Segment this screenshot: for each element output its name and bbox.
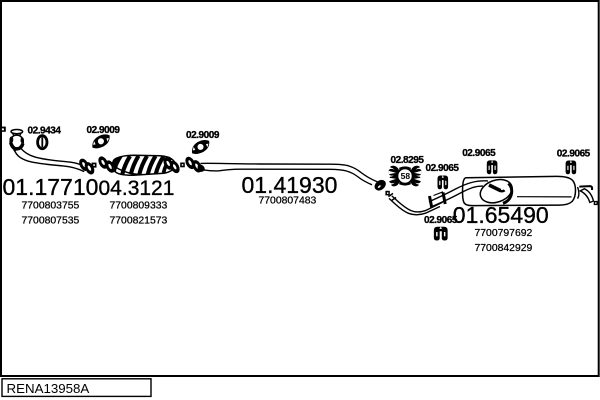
svg-text:7700807483: 7700807483	[259, 195, 317, 206]
svg-text:02.8295: 02.8295	[391, 155, 425, 166]
svg-text:01.41930: 01.41930	[242, 172, 338, 198]
svg-text:58: 58	[401, 171, 411, 181]
svg-text:RENA13958A: RENA13958A	[7, 381, 90, 396]
svg-text:7700821573: 7700821573	[110, 215, 168, 226]
svg-text:02.9065: 02.9065	[462, 148, 496, 159]
svg-text:7700809333: 7700809333	[110, 200, 168, 211]
svg-text:02.9434: 02.9434	[28, 125, 62, 136]
svg-text:7700842929: 7700842929	[475, 243, 533, 254]
svg-text:02.9065: 02.9065	[557, 148, 591, 159]
svg-text:7700797692: 7700797692	[475, 228, 533, 239]
svg-text:04.3121: 04.3121	[99, 177, 175, 200]
svg-text:02.9009: 02.9009	[186, 130, 220, 141]
svg-text:02.9065: 02.9065	[426, 163, 460, 174]
svg-text:02.9009: 02.9009	[87, 125, 121, 136]
svg-text:01.17710: 01.17710	[3, 174, 99, 200]
svg-text:7700803755: 7700803755	[22, 200, 80, 211]
svg-text:01.65490: 01.65490	[453, 202, 549, 228]
svg-text:7700807535: 7700807535	[22, 215, 80, 226]
